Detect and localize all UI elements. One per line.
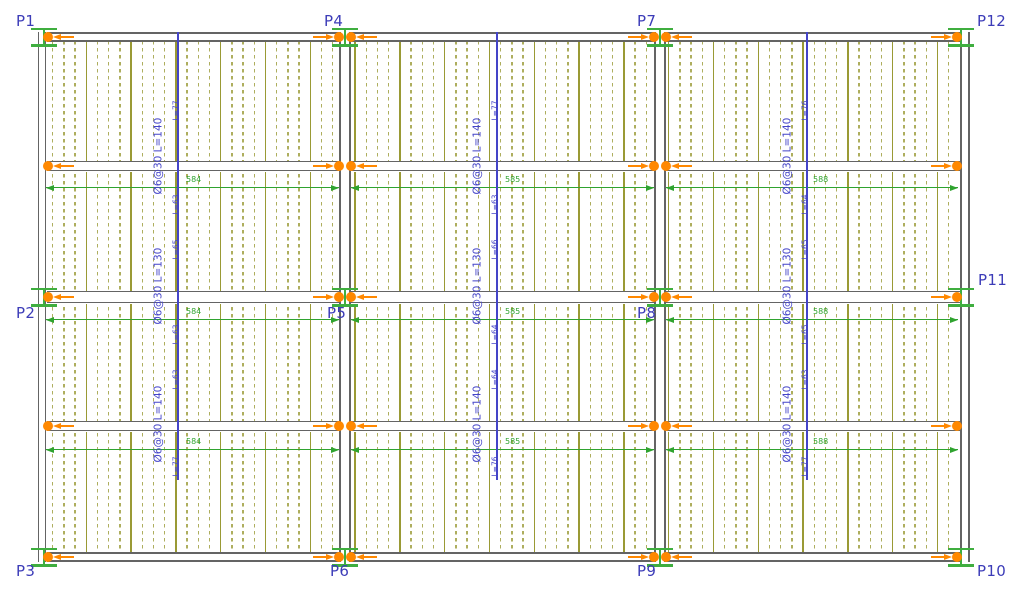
rebar-annotation-text[interactable]: Ø6@30 L=140 xyxy=(783,118,794,195)
support-arrow-icon xyxy=(671,34,679,40)
rebar-annotation-text[interactable]: Ø6@30 L=130 xyxy=(783,248,794,325)
floor-plan-canvas[interactable]: 584585588584585588584585588Ø6@30 L=140Ø6… xyxy=(0,0,1024,597)
support-arrow-icon xyxy=(313,165,326,167)
rebar-length-tag: L=76 xyxy=(491,456,499,476)
support-arrow-icon xyxy=(53,554,61,560)
support-arrow-icon xyxy=(679,165,692,167)
rebar-length-tag: L=64 xyxy=(491,324,499,344)
dimension-arrowhead-right xyxy=(950,185,958,191)
column-marker-p8[interactable] xyxy=(649,292,659,302)
support-arrow-icon xyxy=(641,294,649,300)
intermediate-support-marker[interactable] xyxy=(952,421,962,431)
dimension-label: 588 xyxy=(813,179,828,180)
support-arrow-icon xyxy=(313,296,326,298)
column-marker-p9[interactable] xyxy=(661,552,671,562)
support-arrow-icon xyxy=(356,423,364,429)
support-arrow-icon xyxy=(931,165,944,167)
support-arrow-icon xyxy=(313,36,326,38)
dimension-line xyxy=(46,449,339,450)
column-marker-p4[interactable] xyxy=(334,32,344,42)
beam-vertical-edge[interactable] xyxy=(968,32,970,562)
intermediate-support-marker[interactable] xyxy=(952,161,962,171)
support-arrow-icon xyxy=(628,296,641,298)
support-arrow-icon xyxy=(326,554,334,560)
column-label-p10[interactable]: P10 xyxy=(977,564,1006,579)
support-arrow-icon xyxy=(641,34,649,40)
rebar-length-tag: L=63 xyxy=(172,369,180,389)
dimension-line xyxy=(666,319,958,320)
intermediate-support-marker[interactable] xyxy=(661,161,671,171)
dimension-arrowhead-right xyxy=(331,447,339,453)
rebar-annotation-text[interactable]: Ø6@30 L=140 xyxy=(783,386,794,463)
dimension-line xyxy=(666,449,958,450)
dimension-arrowhead-left xyxy=(46,447,54,453)
dimension-label: 584 xyxy=(186,179,201,180)
support-arrow-icon xyxy=(671,163,679,169)
dimension-arrowhead-left xyxy=(351,185,359,191)
support-arrow-icon xyxy=(326,163,334,169)
rebar-annotation-text[interactable]: Ø6@30 L=130 xyxy=(473,248,484,325)
column-label-p11[interactable]: P11 xyxy=(978,273,1007,288)
support-arrow-icon xyxy=(931,296,944,298)
column-label-p1[interactable]: P1 xyxy=(16,14,35,29)
dimension-line xyxy=(46,187,339,188)
column-label-p6[interactable]: P6 xyxy=(330,564,349,579)
dimension-line xyxy=(351,187,654,188)
support-arrow-icon xyxy=(364,556,377,558)
dimension-arrowhead-left xyxy=(666,447,674,453)
dimension-arrowhead-left xyxy=(666,317,674,323)
support-arrow-icon xyxy=(628,556,641,558)
support-arrow-icon xyxy=(364,296,377,298)
support-arrow-icon xyxy=(641,163,649,169)
support-arrow-icon xyxy=(944,34,952,40)
dimension-arrowhead-right xyxy=(331,185,339,191)
intermediate-support-marker[interactable] xyxy=(346,161,356,171)
intermediate-support-marker[interactable] xyxy=(346,421,356,431)
dimension-label: 585 xyxy=(505,311,520,312)
column-label-p5[interactable]: P5 xyxy=(327,306,346,321)
column-marker-p3[interactable] xyxy=(43,552,53,562)
dimension-label: 588 xyxy=(813,441,828,442)
column-label-p2[interactable]: P2 xyxy=(16,306,35,321)
column-marker-p4[interactable] xyxy=(346,32,356,42)
dimension-arrowhead-left xyxy=(46,185,54,191)
rebar-length-tag: L=63 xyxy=(801,369,809,389)
support-arrow-icon xyxy=(944,554,952,560)
support-arrow-icon xyxy=(641,554,649,560)
column-marker-p7[interactable] xyxy=(649,32,659,42)
support-arrow-icon xyxy=(326,423,334,429)
support-arrow-icon xyxy=(944,294,952,300)
dimension-arrowhead-right xyxy=(950,447,958,453)
support-arrow-icon xyxy=(53,34,61,40)
rebar-annotation-text[interactable]: Ø6@30 L=140 xyxy=(473,386,484,463)
dimension-line xyxy=(351,319,654,320)
beam-horizontal-edge[interactable] xyxy=(38,552,968,554)
column-marker-p6[interactable] xyxy=(334,552,344,562)
rebar-annotation-text[interactable]: Ø6@30 L=130 xyxy=(154,248,165,325)
column-marker-p1[interactable] xyxy=(43,32,53,42)
support-arrow-icon xyxy=(628,36,641,38)
support-arrow-icon xyxy=(931,556,944,558)
rebar-length-tag: L=77 xyxy=(172,456,180,476)
support-arrow-icon xyxy=(671,554,679,560)
rebar-length-tag: L=65 xyxy=(801,324,809,344)
support-arrow-icon xyxy=(679,36,692,38)
support-arrow-icon xyxy=(53,423,61,429)
column-label-p8[interactable]: P8 xyxy=(637,306,656,321)
column-marker-p11[interactable] xyxy=(952,292,962,302)
support-arrow-icon xyxy=(53,294,61,300)
beam-horizontal-edge[interactable] xyxy=(38,560,968,562)
dimension-line xyxy=(666,187,958,188)
dimension-label: 584 xyxy=(186,311,201,312)
dimension-label: 584 xyxy=(186,441,201,442)
support-arrow-icon xyxy=(61,556,74,558)
dimension-arrowhead-right xyxy=(950,317,958,323)
rebar-length-tag: L=63 xyxy=(491,194,499,214)
support-arrow-icon xyxy=(61,296,74,298)
rebar-annotation-text[interactable]: Ø6@30 L=140 xyxy=(154,118,165,195)
dimension-line xyxy=(351,449,654,450)
support-arrow-icon xyxy=(628,425,641,427)
intermediate-support-marker[interactable] xyxy=(649,421,659,431)
column-label-p3[interactable]: P3 xyxy=(16,564,35,579)
rebar-length-tag: L=63 xyxy=(172,324,180,344)
intermediate-support-marker[interactable] xyxy=(649,161,659,171)
support-arrow-icon xyxy=(313,556,326,558)
rebar-length-tag: L=63 xyxy=(172,194,180,214)
dimension-arrowhead-left xyxy=(666,185,674,191)
support-arrow-icon xyxy=(326,34,334,40)
dimension-arrowhead-left xyxy=(351,317,359,323)
support-arrow-icon xyxy=(61,425,74,427)
intermediate-support-marker[interactable] xyxy=(334,161,344,171)
dimension-line xyxy=(46,319,339,320)
rebar-length-tag: L=77 xyxy=(172,100,180,120)
support-arrow-icon xyxy=(53,163,61,169)
support-arrow-icon xyxy=(61,36,74,38)
dimension-arrowhead-right xyxy=(646,447,654,453)
rebar-length-tag: L=76 xyxy=(801,100,809,120)
support-arrow-icon xyxy=(931,36,944,38)
column-marker-p5[interactable] xyxy=(346,292,356,302)
support-arrow-icon xyxy=(61,165,74,167)
rebar-length-tag: L=66 xyxy=(491,239,499,259)
support-arrow-icon xyxy=(641,423,649,429)
support-arrow-icon xyxy=(931,425,944,427)
column-marker-p8[interactable] xyxy=(661,292,671,302)
support-arrow-icon xyxy=(364,165,377,167)
rebar-length-tag: L=65 xyxy=(172,239,180,259)
support-arrow-icon xyxy=(326,294,334,300)
column-marker-p6[interactable] xyxy=(346,552,356,562)
support-arrow-icon xyxy=(356,34,364,40)
dimension-label: 585 xyxy=(505,441,520,442)
rebar-length-tag: L=64 xyxy=(801,194,809,214)
support-arrow-icon xyxy=(679,425,692,427)
support-arrow-icon xyxy=(313,425,326,427)
column-marker-p7[interactable] xyxy=(661,32,671,42)
intermediate-support-marker[interactable] xyxy=(661,421,671,431)
support-arrow-icon xyxy=(356,294,364,300)
support-arrow-icon xyxy=(671,294,679,300)
column-label-p7[interactable]: P7 xyxy=(637,14,656,29)
rebar-annotation-text[interactable]: Ø6@30 L=140 xyxy=(154,386,165,463)
intermediate-support-marker[interactable] xyxy=(334,421,344,431)
rebar-length-tag: L=65 xyxy=(801,239,809,259)
dimension-label: 585 xyxy=(505,179,520,180)
column-marker-p5[interactable] xyxy=(334,292,344,302)
column-label-p12[interactable]: P12 xyxy=(977,14,1006,29)
beam-vertical-edge[interactable] xyxy=(38,32,40,562)
rebar-length-tag: L=77 xyxy=(491,100,499,120)
dimension-arrowhead-left xyxy=(46,317,54,323)
support-arrow-icon xyxy=(364,36,377,38)
support-arrow-icon xyxy=(356,163,364,169)
intermediate-support-marker[interactable] xyxy=(43,161,53,171)
column-marker-p9[interactable] xyxy=(649,552,659,562)
support-arrow-icon xyxy=(679,556,692,558)
dimension-arrowhead-right xyxy=(646,185,654,191)
rebar-length-tag: L=77 xyxy=(801,456,809,476)
support-arrow-icon xyxy=(944,423,952,429)
column-marker-p2[interactable] xyxy=(43,292,53,302)
rebar-annotation-text[interactable]: Ø6@30 L=140 xyxy=(473,118,484,195)
support-arrow-icon xyxy=(364,425,377,427)
column-label-p9[interactable]: P9 xyxy=(637,564,656,579)
intermediate-support-marker[interactable] xyxy=(43,421,53,431)
support-arrow-icon xyxy=(671,423,679,429)
column-marker-p10[interactable] xyxy=(952,552,962,562)
column-label-p4[interactable]: P4 xyxy=(324,14,343,29)
support-arrow-icon xyxy=(679,296,692,298)
support-arrow-icon xyxy=(356,554,364,560)
rebar-length-tag: L=64 xyxy=(491,369,499,389)
column-marker-p12[interactable] xyxy=(952,32,962,42)
support-arrow-icon xyxy=(628,165,641,167)
support-arrow-icon xyxy=(944,163,952,169)
dimension-arrowhead-left xyxy=(351,447,359,453)
dimension-label: 588 xyxy=(813,311,828,312)
